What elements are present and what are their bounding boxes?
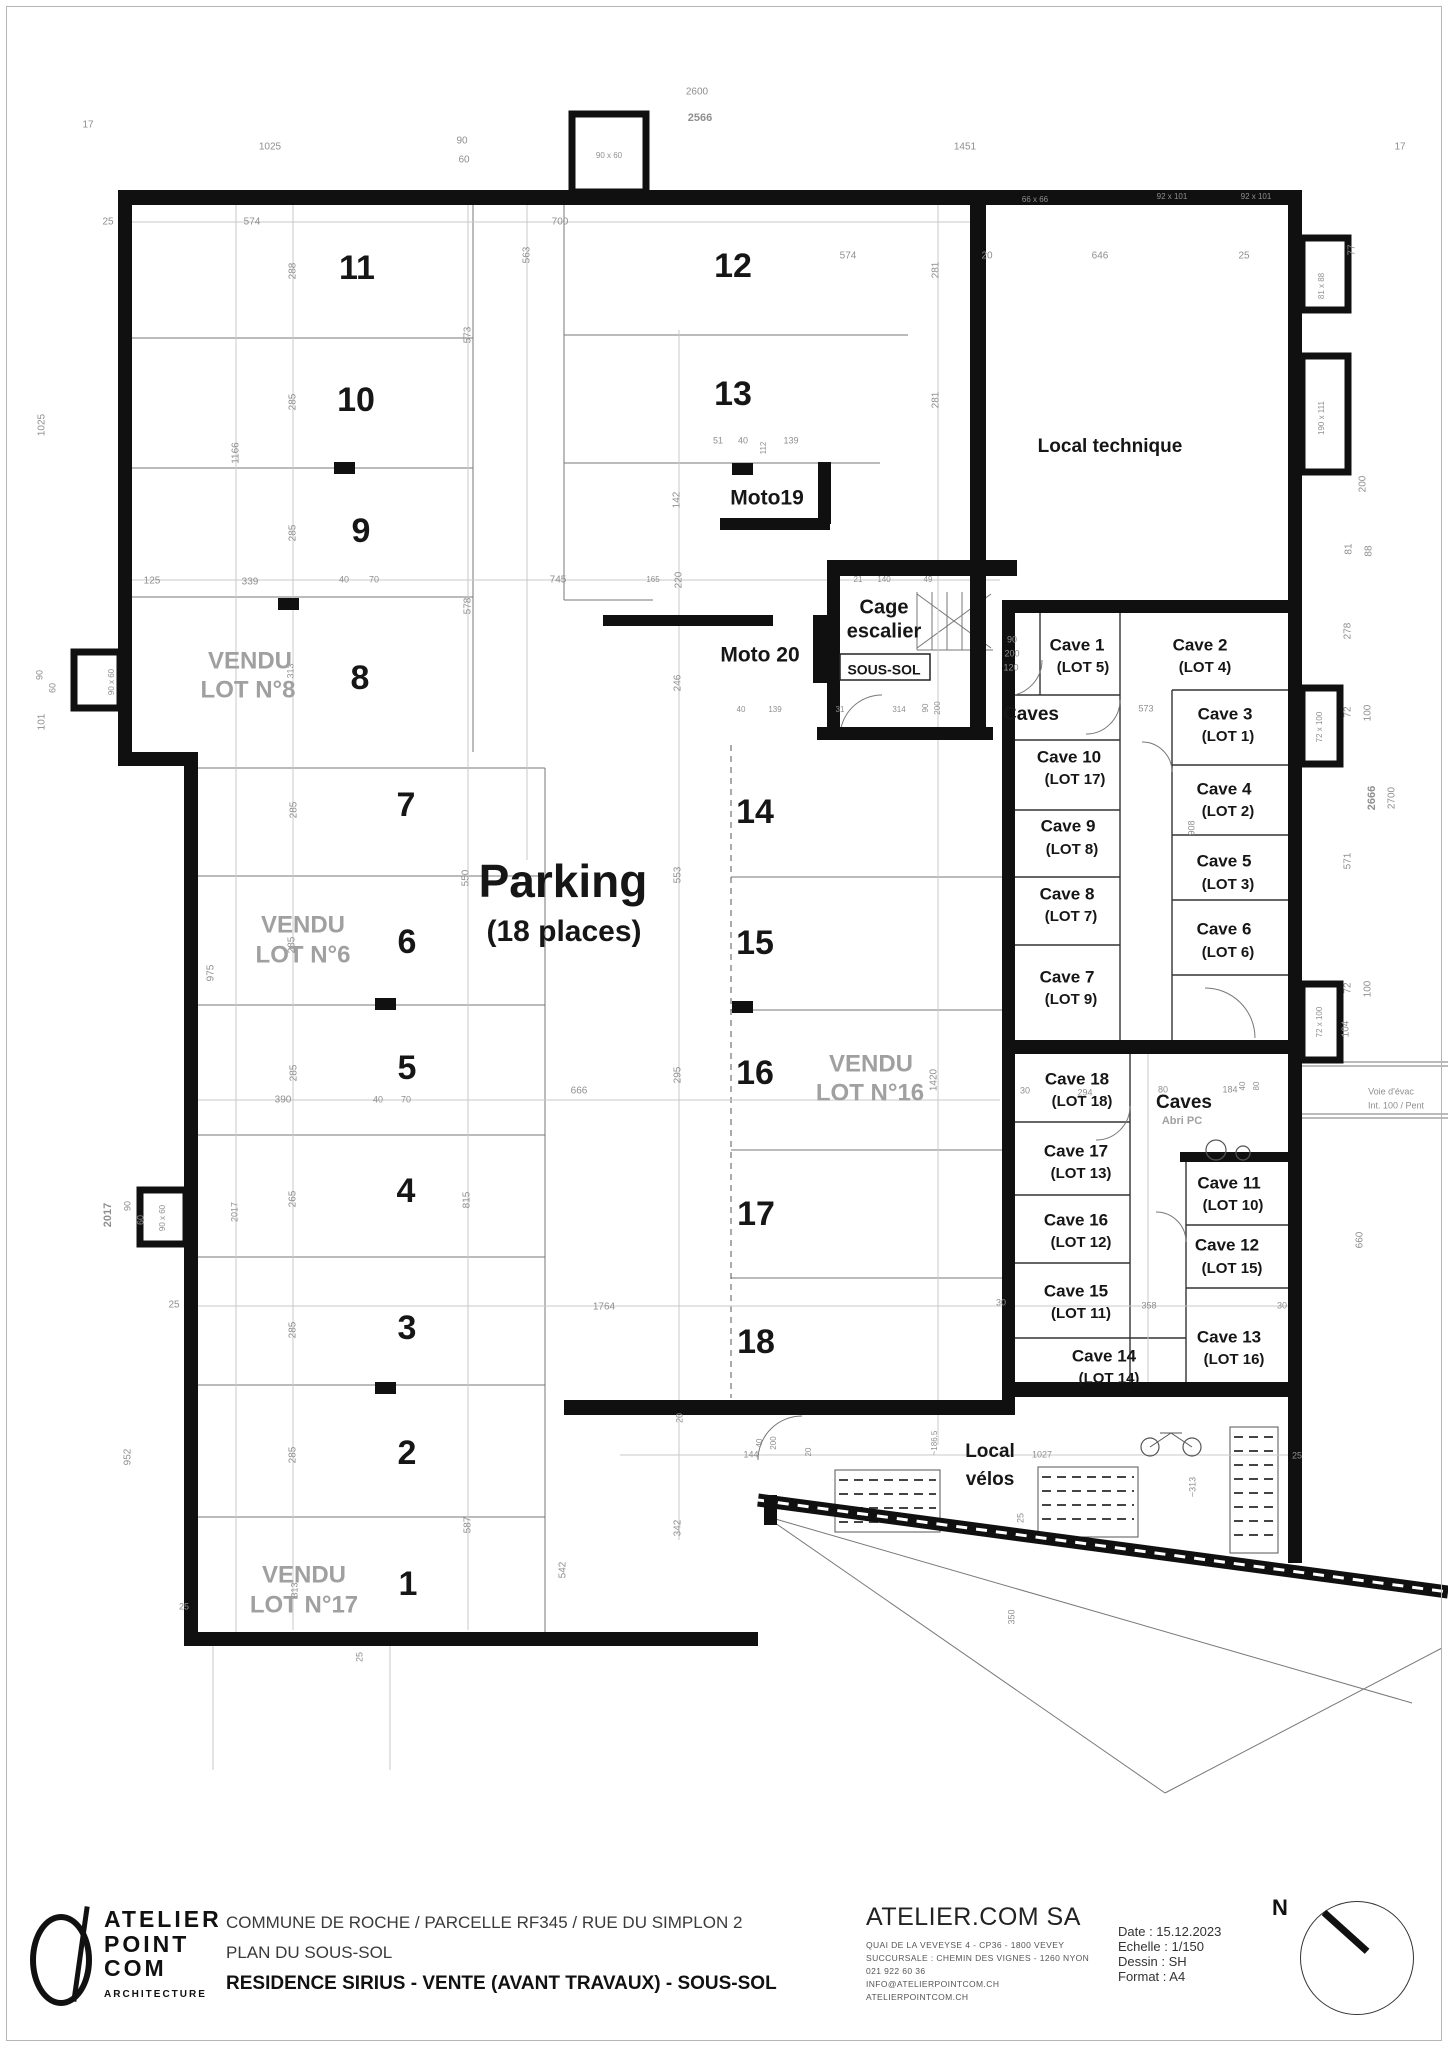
dimension-label: 285 — [288, 1446, 299, 1463]
wall — [970, 205, 986, 737]
room-label: Cave 10 — [1037, 747, 1101, 766]
room-label: Parking — [479, 855, 648, 907]
dimension-label: 908 — [1186, 820, 1196, 835]
door-arc — [1086, 700, 1120, 734]
room-label: 7 — [397, 786, 416, 824]
dimension-label: 975 — [206, 964, 217, 981]
dimension-label: 66 x 66 — [1022, 195, 1049, 204]
wall — [813, 615, 827, 683]
meta-list: Date : 15.12.2023Echelle : 1/150Dessin :… — [1118, 1924, 1258, 1984]
dimension-label: 125 — [144, 576, 161, 587]
room-label: Moto 20 — [720, 644, 799, 667]
wall — [720, 518, 830, 530]
room-label: (LOT 17) — [1045, 771, 1106, 788]
dimension-label: 72 — [1343, 706, 1354, 718]
room-label: 8 — [351, 659, 370, 697]
dimension-label: 139 — [783, 435, 798, 445]
dimension-label: 587 — [463, 1516, 474, 1533]
dimension-label: 88 — [1364, 545, 1375, 557]
dimension-label: 90 x 60 — [596, 151, 623, 160]
dimension-label: 60 — [458, 155, 470, 166]
dimension-label: 200 — [933, 701, 942, 715]
dimension-label: 285 — [288, 524, 299, 541]
room-label: (LOT 10) — [1203, 1197, 1264, 1214]
dimension-label: 246 — [673, 674, 684, 691]
room-label: escalier — [847, 620, 922, 642]
dimension-label: 90 — [1007, 634, 1017, 644]
dimension-label: 40 — [339, 574, 349, 584]
dimension-label: 20 — [804, 1447, 813, 1456]
dimension-label: 2017 — [229, 1202, 239, 1222]
dimension-label: 1166 — [231, 442, 242, 464]
room-label: 17 — [737, 1195, 775, 1233]
dimension-label: 390 — [275, 1095, 292, 1106]
room-label: Cave 6 — [1197, 919, 1252, 938]
wall — [1002, 600, 1294, 613]
dimension-label: 92 x 101 — [1157, 192, 1188, 201]
dimension-label: 25 — [1238, 251, 1250, 262]
sold-lot-label: LOT N°17 — [250, 1591, 358, 1618]
room-label: (LOT 9) — [1045, 991, 1098, 1008]
plan-line — [1171, 1433, 1192, 1447]
room-label: Cave 9 — [1041, 816, 1096, 835]
dimension-label: 285 — [289, 1064, 300, 1081]
room-label: (18 places) — [486, 915, 641, 948]
dimension-label: 40 — [738, 435, 748, 445]
room-label: 1 — [399, 1565, 418, 1603]
room-label: 14 — [736, 793, 774, 831]
dimension-label: 342 — [673, 1519, 684, 1536]
dimension-label: 90 — [122, 1201, 132, 1211]
door-arc — [1156, 1212, 1186, 1242]
plan-name: PLAN DU SOUS-SOL — [226, 1943, 852, 1963]
room-label: (LOT 13) — [1051, 1165, 1112, 1182]
dimension-label: 571 — [1343, 852, 1354, 869]
dimension-label: 281 — [931, 391, 942, 408]
dimension-label: 112 — [759, 441, 768, 454]
dimension-label: 104 — [1341, 1020, 1352, 1037]
plan-line — [1165, 1648, 1442, 1793]
compass-circle-icon — [1300, 1901, 1414, 2015]
dimension-label: 745 — [550, 575, 567, 586]
room-label: Cage — [860, 596, 909, 618]
door-arc — [1096, 1106, 1130, 1140]
logo-line3: COM — [104, 1956, 222, 1981]
dimension-label: 285 — [288, 393, 299, 410]
room-label: 15 — [736, 924, 774, 962]
room-label: (LOT 6) — [1202, 944, 1255, 961]
dimension-label: 550 — [461, 869, 472, 886]
dimension-label: 574 — [244, 217, 261, 228]
meta-list-item-1: Echelle : 1/150 — [1118, 1939, 1258, 1954]
dimension-label: 25 — [1292, 1450, 1302, 1460]
dimension-label: 815 — [462, 1191, 473, 1208]
room-label: Cave 5 — [1197, 851, 1252, 870]
dimension-label: 81 x 88 — [1317, 272, 1326, 299]
dimension-label: 70 — [401, 1094, 411, 1104]
dimension-label: 220 — [674, 571, 685, 588]
dimension-label: 339 — [242, 577, 259, 588]
room-label: Cave 8 — [1040, 884, 1095, 903]
room-label: Cave 7 — [1040, 967, 1095, 986]
dimension-label: 660 — [1355, 1231, 1366, 1248]
wall — [818, 462, 831, 524]
company-address-list-item-0: QUAI DE LA VEVEYSE 4 - CP36 - 1800 VEVEY — [866, 1939, 1104, 1952]
room-label: (LOT 2) — [1202, 803, 1255, 820]
dimension-label: 1764 — [593, 1302, 616, 1313]
dimension-label: 278 — [1343, 622, 1354, 639]
plan-line — [765, 1516, 1165, 1793]
dimension-label: 2666 — [1366, 786, 1378, 810]
dimension-label: 72 — [1343, 982, 1354, 994]
plan-line — [1150, 1433, 1171, 1447]
dimension-label: 165 — [646, 575, 660, 584]
room-label: vélos — [966, 1469, 1015, 1490]
room-label: (LOT 7) — [1045, 908, 1098, 925]
company-address-list: QUAI DE LA VEVEYSE 4 - CP36 - 1800 VEVEY… — [866, 1939, 1104, 2005]
dimension-label: 17 — [82, 120, 94, 131]
meta-list-item-3: Format : A4 — [1118, 1969, 1258, 1984]
dimension-label: Voie d'évac — [1368, 1086, 1414, 1096]
dimension-label: 700 — [552, 217, 569, 228]
dimension-label: 285 — [289, 801, 300, 818]
logo-subtitle: ARCHITECTURE — [104, 1989, 222, 2000]
company-name: ATELIER.COM SA — [866, 1903, 1104, 1932]
dimension-label: 573 — [463, 326, 474, 343]
room-label: Cave 17 — [1044, 1141, 1108, 1160]
room-label: Moto19 — [730, 487, 804, 510]
dimension-label: 20 — [981, 251, 993, 262]
dimension-label: 25 — [168, 1300, 180, 1311]
company-address-list-item-1: SUCCURSALE : CHEMIN DES VIGNES - 1260 NY… — [866, 1952, 1104, 1965]
dimension-label: 20 — [674, 1413, 684, 1423]
room-label: (LOT 11) — [1051, 1305, 1111, 1322]
door-arc — [758, 1416, 802, 1460]
dimension-label: 140 — [877, 575, 891, 584]
room-label: SOUS-SOL — [847, 662, 921, 678]
architect-logo: ATELIER POINT COM ARCHITECTURE — [30, 1906, 212, 2002]
north-compass: N — [1272, 1879, 1422, 2029]
dimension-label: 350 — [1006, 1609, 1016, 1624]
meta-list-item-0: Date : 15.12.2023 — [1118, 1924, 1258, 1939]
wall — [184, 1632, 758, 1646]
dimension-label: 285 — [288, 1321, 299, 1338]
wall — [970, 560, 1017, 576]
dimension-label: 100 — [1363, 980, 1374, 997]
room-label: 10 — [337, 381, 375, 419]
dimension-label: 90 — [34, 670, 44, 680]
dimension-label: 51 — [713, 435, 723, 445]
dimension-label: 25 — [179, 1601, 189, 1611]
dimension-label: 1027 — [1032, 1449, 1052, 1459]
dimension-label: 358 — [1141, 1300, 1156, 1310]
north-label: N — [1272, 1895, 1288, 1921]
room-label: 16 — [736, 1054, 774, 1092]
dimension-label: 80 — [1252, 1081, 1261, 1090]
room-label: Cave 3 — [1198, 704, 1253, 723]
dimension-label: 21 — [854, 575, 863, 584]
dimension-label: 40 — [755, 1438, 764, 1447]
wheel-stop — [375, 998, 396, 1010]
wall — [1180, 1152, 1288, 1162]
dimension-label: 72 x 100 — [1315, 711, 1324, 742]
dimension-label: 2600 — [686, 87, 709, 98]
dimension-label: 2017 — [102, 1203, 114, 1227]
title-block: ATELIER POINT COM ARCHITECTURE COMMUNE D… — [0, 1860, 1448, 2047]
dimension-label: 30 — [1277, 1300, 1287, 1310]
room-label: Cave 13 — [1197, 1327, 1261, 1346]
sold-lot-label: VENDU — [262, 1561, 346, 1588]
logo-line1: ATELIER — [104, 1907, 222, 1932]
wall — [1002, 1040, 1294, 1054]
dimension-label: 666 — [571, 1086, 588, 1097]
dimension-label: 100 — [1363, 704, 1374, 721]
floor-plan-svg: 26002566102590601451171790 x 60255747005… — [0, 0, 1448, 1860]
dimension-label: 563 — [522, 246, 533, 263]
dimension-label: 90 — [921, 703, 930, 712]
dimension-label: 30 — [996, 1297, 1006, 1307]
room-label: Cave 4 — [1197, 779, 1252, 798]
floor-plan: 26002566102590601451171790 x 60255747005… — [0, 0, 1448, 1860]
dimension-label: 573 — [1138, 703, 1153, 713]
dimension-label: 288 — [288, 262, 299, 279]
dimension-label: 139 — [768, 705, 782, 714]
room-label: 11 — [339, 249, 375, 287]
sold-lot-label: LOT N°16 — [816, 1079, 924, 1106]
plan-sheet: 26002566102590601451171790 x 60255747005… — [0, 0, 1448, 2047]
room-label: Caves — [1003, 704, 1059, 725]
dimension-label: Int. 100 / Pent — [1368, 1100, 1425, 1110]
room-label: (LOT 1) — [1202, 728, 1255, 745]
dimension-label: 17 — [1394, 142, 1406, 153]
room-label: Local — [965, 1441, 1015, 1462]
room-label: Cave 2 — [1173, 635, 1228, 654]
project-info: COMMUNE DE ROCHE / PARCELLE RF345 / RUE … — [226, 1913, 852, 1995]
room-label: 13 — [714, 375, 752, 413]
room-label: Local technique — [1038, 436, 1183, 457]
wall — [564, 1400, 1015, 1415]
room-label: (LOT 3) — [1202, 876, 1255, 893]
dimension-label: 25 — [354, 1652, 364, 1662]
drawing-title: RESIDENCE SIRIUS - VENTE (AVANT TRAVAUX)… — [226, 1973, 852, 1995]
dimension-label: 265 — [288, 1190, 299, 1207]
dimension-label: 120 — [1003, 662, 1018, 672]
drawing-meta: Date : 15.12.2023Echelle : 1/150Dessin :… — [1118, 1924, 1258, 1984]
wheel-stop — [375, 1382, 396, 1394]
dimension-label: 40 — [373, 1094, 383, 1104]
sold-lot-label: VENDU — [829, 1050, 913, 1077]
room-label: (LOT 8) — [1046, 841, 1099, 858]
sold-lot-label: LOT N°8 — [201, 676, 296, 703]
wheel-stop — [334, 462, 355, 474]
room-label: (LOT 4) — [1179, 659, 1232, 676]
dimension-label: 1451 — [954, 142, 977, 153]
room-label: (LOT 14) — [1079, 1370, 1140, 1387]
wall — [1002, 1382, 1294, 1397]
room-label: Cave 14 — [1072, 1346, 1137, 1365]
room-label: Cave 1 — [1050, 635, 1105, 654]
dimension-label: 142 — [672, 491, 683, 508]
dimension-label: 77 — [1347, 244, 1358, 256]
room-label: Cave 15 — [1044, 1281, 1108, 1300]
wall — [817, 727, 993, 740]
wall — [118, 190, 1294, 205]
dimension-label: 70 — [369, 574, 379, 584]
dimension-label: 952 — [123, 1448, 134, 1465]
wheel-stop — [278, 598, 299, 610]
room-label: (LOT 16) — [1204, 1351, 1265, 1368]
dimension-label: 144 — [743, 1449, 758, 1459]
dimension-label: 49 — [924, 575, 933, 584]
dimension-label: 200 — [1358, 475, 1369, 492]
dimension-label: 30 — [1020, 1085, 1030, 1095]
dimension-label: 314 — [892, 705, 906, 714]
dimension-label: 101 — [37, 713, 48, 730]
sold-lot-label: VENDU — [208, 647, 292, 674]
wall — [764, 1495, 777, 1525]
room-label: Cave 11 — [1197, 1173, 1260, 1192]
dimension-label: ~313 — [1187, 1477, 1197, 1497]
dimension-label: 25 — [102, 217, 114, 228]
dimension-label: 184 — [1222, 1084, 1237, 1094]
room-label: 6 — [398, 923, 417, 961]
door-arc — [1205, 988, 1255, 1038]
dimension-label: 81 — [1344, 543, 1355, 555]
dimension-label: 72 x 100 — [1315, 1006, 1324, 1037]
room-label: Cave 16 — [1044, 1210, 1108, 1229]
room-label: Caves — [1156, 1092, 1212, 1113]
dimension-label: 90 — [456, 136, 468, 147]
room-label: 18 — [737, 1323, 775, 1361]
dimension-label: 281 — [931, 261, 942, 278]
sold-lot-label: VENDU — [261, 911, 345, 938]
dimension-label: 1025 — [37, 413, 48, 436]
room-label: 3 — [398, 1309, 417, 1347]
room-label: (LOT 5) — [1057, 659, 1110, 676]
dimension-label: 25 — [1015, 1513, 1025, 1523]
dimension-label: 574 — [840, 251, 857, 262]
dimension-label: 1025 — [259, 142, 282, 153]
dimension-label: 31 — [836, 705, 845, 714]
dimension-label: 200 — [1004, 648, 1019, 658]
logo-mark-icon — [30, 1906, 94, 2002]
room-label: (LOT 12) — [1051, 1234, 1112, 1251]
dimension-label: 578 — [463, 597, 474, 614]
dimension-label: 90 x 60 — [158, 1204, 167, 1231]
dimension-label: 60 — [47, 683, 57, 693]
room-label: 5 — [398, 1049, 417, 1087]
room-label: (LOT 18) — [1052, 1093, 1113, 1110]
company-address-list-item-3: INFO@ATELIERPOINTCOM.CH — [866, 1978, 1104, 1991]
door-arc — [1142, 742, 1172, 772]
company-block: ATELIER.COM SA QUAI DE LA VEVEYSE 4 - CP… — [866, 1903, 1104, 2005]
project-location: COMMUNE DE ROCHE / PARCELLE RF345 / RUE … — [226, 1913, 852, 1933]
dimension-label: 2700 — [1387, 786, 1398, 809]
wall — [603, 615, 773, 626]
wheel-stop — [732, 1001, 753, 1013]
dimension-label: ~186.5 — [930, 1430, 939, 1455]
room-label: 12 — [714, 247, 752, 285]
dimension-label: 40 — [737, 705, 746, 714]
dimension-label: 60 — [135, 1215, 145, 1225]
logo-text: ATELIER POINT COM ARCHITECTURE — [104, 1907, 222, 2000]
dimension-label: 646 — [1092, 251, 1109, 262]
room-label: 2 — [398, 1434, 417, 1472]
dimension-label: 2566 — [688, 112, 712, 124]
dimension-label: 92 x 101 — [1241, 192, 1272, 201]
dimension-label: 90 x 60 — [107, 668, 116, 695]
room-label: 4 — [397, 1172, 416, 1210]
meta-list-item-2: Dessin : SH — [1118, 1954, 1258, 1969]
dimension-label: 40 — [1238, 1081, 1247, 1090]
room-label: 9 — [352, 512, 371, 550]
company-address-list-item-4: ATELIERPOINTCOM.CH — [866, 1991, 1104, 2004]
logo-line2: POINT — [104, 1932, 222, 1957]
sold-lot-label: Abri PC — [1162, 1115, 1202, 1127]
wheel-stop — [732, 463, 753, 475]
dimension-label: 295 — [673, 1066, 684, 1083]
company-address-list-item-2: 021 922 60 36 — [866, 1965, 1104, 1978]
dimension-label: 200 — [769, 1436, 778, 1450]
room-label: Cave 12 — [1195, 1235, 1259, 1254]
room-label: (LOT 15) — [1202, 1260, 1263, 1277]
wall — [827, 560, 977, 576]
dimension-label: 553 — [673, 866, 684, 883]
sold-lot-label: LOT N°6 — [256, 941, 351, 968]
dimension-label: 190 x 111 — [1317, 400, 1326, 435]
dimension-label: 1420 — [929, 1068, 940, 1091]
dimension-label: 542 — [558, 1561, 569, 1578]
room-label: Cave 18 — [1045, 1069, 1109, 1088]
